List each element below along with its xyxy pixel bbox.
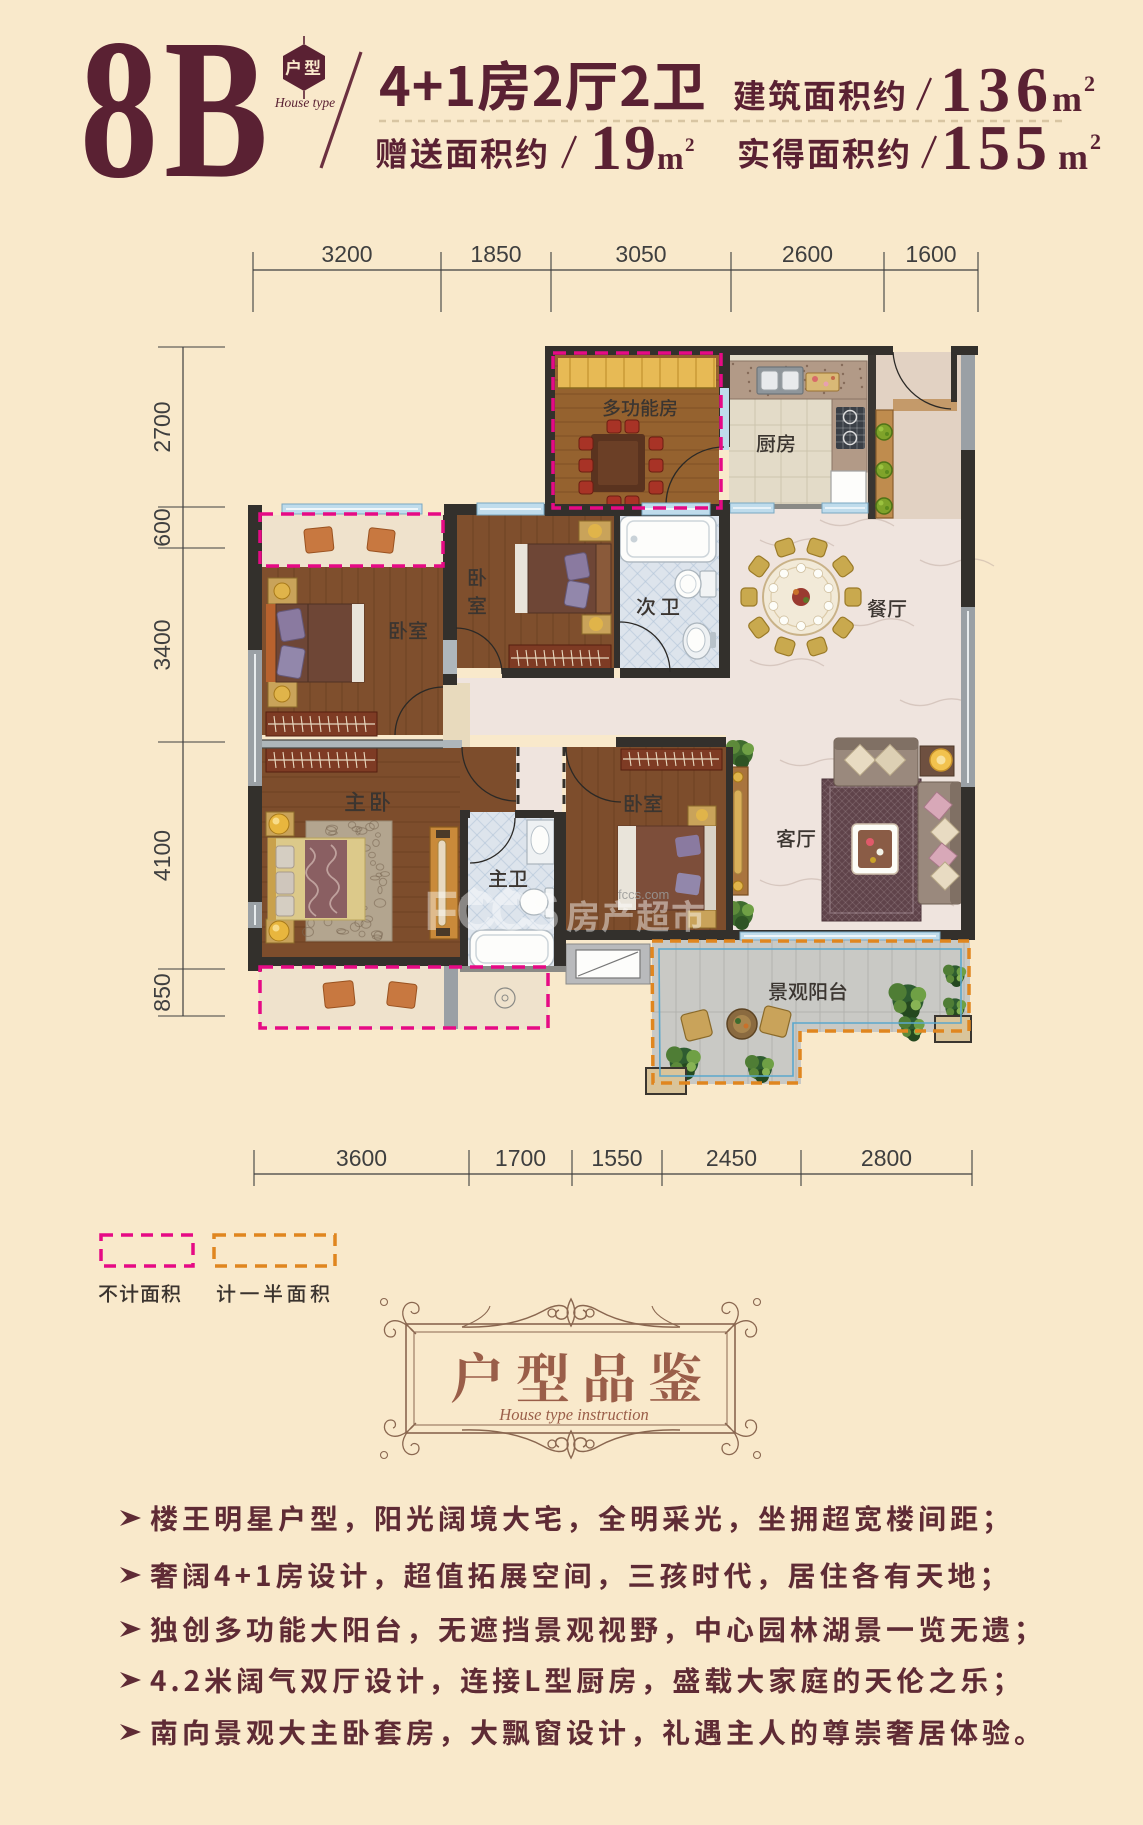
- svg-text:1850: 1850: [470, 241, 521, 267]
- svg-text:3600: 3600: [336, 1145, 387, 1171]
- svg-text:3400: 3400: [149, 619, 175, 670]
- svg-text:850: 850: [149, 973, 175, 1011]
- svg-text:4100: 4100: [149, 830, 175, 881]
- svg-text:House type: House type: [274, 95, 335, 110]
- svg-text:House type instruction: House type instruction: [498, 1405, 648, 1424]
- svg-text:F: F: [424, 879, 458, 942]
- svg-text:fccs.com: fccs.com: [618, 887, 669, 902]
- svg-text:3200: 3200: [321, 241, 372, 267]
- svg-text:1600: 1600: [905, 241, 956, 267]
- svg-text:1700: 1700: [495, 1145, 546, 1171]
- svg-text:S: S: [524, 882, 560, 942]
- svg-text:2700: 2700: [149, 401, 175, 452]
- svg-text:3050: 3050: [615, 241, 666, 267]
- svg-text:2800: 2800: [861, 1145, 912, 1171]
- svg-text:2450: 2450: [706, 1145, 757, 1171]
- svg-text:600: 600: [149, 508, 175, 546]
- svg-text:1550: 1550: [591, 1145, 642, 1171]
- svg-text:2600: 2600: [782, 241, 833, 267]
